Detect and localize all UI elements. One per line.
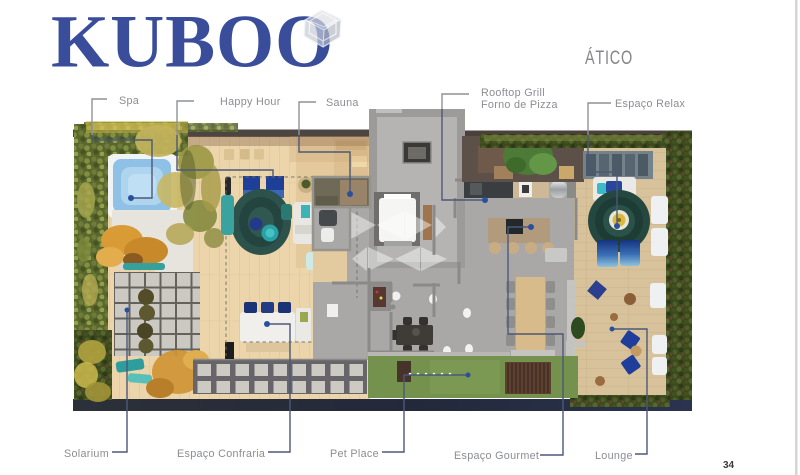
svg-text:Forno de Pizza: Forno de Pizza xyxy=(481,99,558,111)
svg-text:Rooftop Grill: Rooftop Grill xyxy=(481,87,545,99)
svg-text:34: 34 xyxy=(723,460,735,471)
svg-text:Sauna: Sauna xyxy=(326,97,359,109)
svg-text:KUBOO: KUBOO xyxy=(51,1,334,84)
svg-text:Lounge: Lounge xyxy=(595,450,633,462)
svg-text:Pet Place: Pet Place xyxy=(330,448,379,460)
svg-text:ÁTICO: ÁTICO xyxy=(585,48,633,69)
svg-text:Espaço Gourmet: Espaço Gourmet xyxy=(454,450,539,462)
svg-text:Solarium: Solarium xyxy=(64,448,109,460)
svg-text:Happy Hour: Happy Hour xyxy=(220,96,281,108)
svg-text:Espaço Confraria: Espaço Confraria xyxy=(177,448,265,460)
svg-text:Espaço Relax: Espaço Relax xyxy=(615,98,686,110)
svg-text:Spa: Spa xyxy=(119,95,139,107)
